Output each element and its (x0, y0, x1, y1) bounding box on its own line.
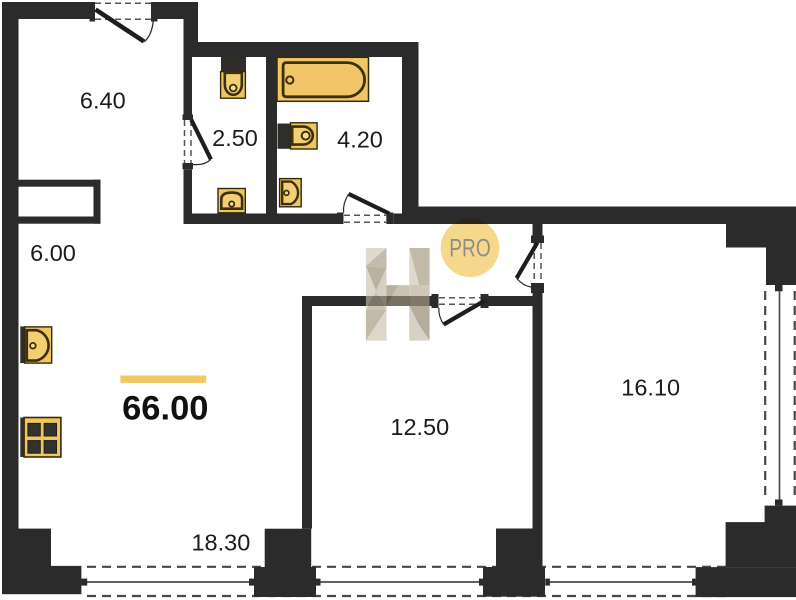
svg-text:66.00: 66.00 (122, 390, 208, 428)
svg-text:18.30: 18.30 (191, 530, 250, 556)
svg-text:6.40: 6.40 (80, 87, 126, 113)
svg-text:16.10: 16.10 (621, 374, 680, 400)
svg-text:6.00: 6.00 (30, 240, 76, 266)
svg-text:12.50: 12.50 (390, 414, 449, 440)
svg-text:2.50: 2.50 (212, 125, 258, 151)
svg-text:PRO: PRO (449, 235, 491, 263)
svg-text:4.20: 4.20 (337, 126, 383, 152)
